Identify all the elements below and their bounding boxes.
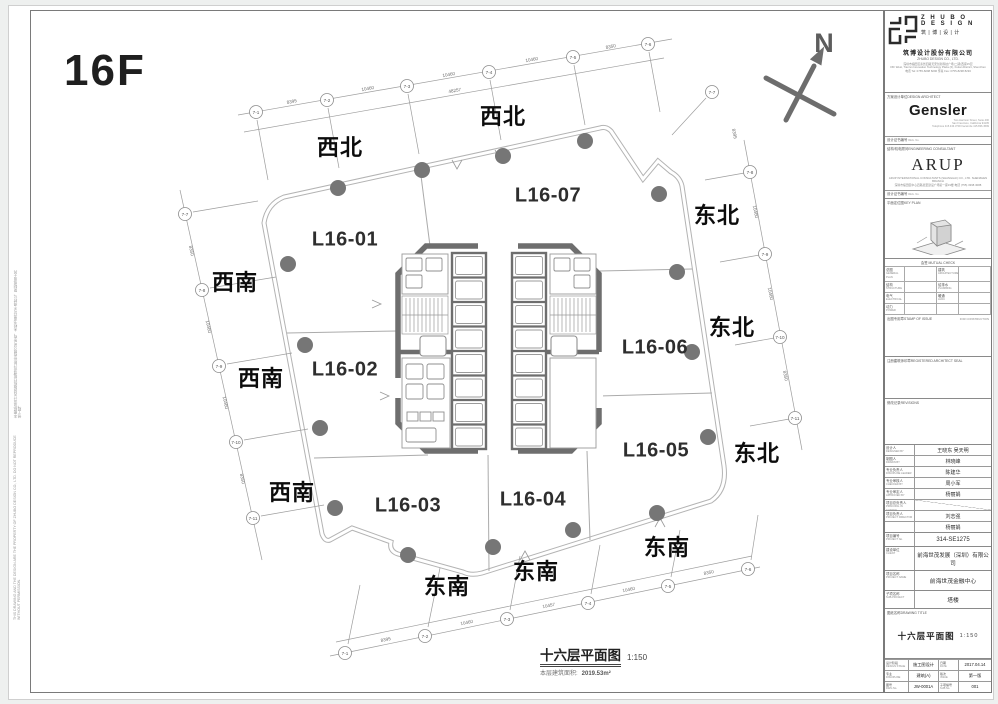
zhubo-company-cn: 筑博设计股份有限公司 [885,48,991,57]
tb-sheet-scale: 1:150 [960,633,979,639]
svg-text:10460: 10460 [752,205,759,219]
service-room-topleft [402,254,448,294]
tb-subproject: 子项名称SUB-PROJECT塔楼 [885,591,991,609]
svg-text:48257: 48257 [448,87,462,94]
caption-area-value: 2019.53m² [582,671,611,677]
svg-text:7-4: 7-4 [486,70,493,75]
direction-label-sw: 西南 [238,361,284,393]
tb-revision-box: 修改记录REVISIONS [885,399,991,445]
svg-text:10460: 10460 [460,619,474,626]
restroom-fixtures [402,358,450,448]
direction-label-se: 东南 [424,569,470,601]
core [394,241,603,455]
mech-room [550,358,596,448]
drawing-caption: 十六层平面图1:150 本层建筑面积:2019.53m² [540,644,730,677]
svg-text:10460: 10460 [525,56,539,63]
direction-label-nw: 西北 [317,130,363,162]
caption-title: 十六层平面图 [540,648,621,667]
svg-text:10460: 10460 [767,287,774,301]
unit-label: L16-03 [375,495,441,518]
arup-logo: ARUP [885,155,991,175]
svg-text:8350: 8350 [188,245,195,256]
svg-text:7-11: 7-11 [791,416,800,421]
zhubo-logo-icon [888,15,918,45]
svg-text:7-2: 7-2 [422,634,429,639]
svg-text:8350: 8350 [703,569,714,576]
svg-text:8350: 8350 [239,473,246,484]
tb-sheet-title: 图纸名称DRAWING TITLE 十六层平面图 1:150 [885,609,991,659]
unit-label: L16-04 [500,489,566,512]
svg-text:7-1: 7-1 [253,110,260,115]
svg-text:7-11: 7-11 [249,516,258,521]
direction-label-ne: 东北 [709,310,755,342]
unit-label: L16-06 [622,337,688,360]
elevator-bank-left [452,253,486,449]
margin-note-en: THIS DRAWING AND THE DESIGN ARE THE PROP… [13,430,25,620]
tb-registration-box: 注册建筑师印章REGISTERED ARCHITECT SEAL [885,357,991,399]
svg-text:7-8: 7-8 [747,170,754,175]
tb-sheet-title-value: 十六层平面图 [898,630,955,642]
svg-text:7-8: 7-8 [199,288,206,293]
floor-title: 16F [64,46,146,96]
tb-keyplan: 平面定位图KEY PLAN [885,199,991,259]
north-label: N [814,28,834,58]
svg-text:7-9: 7-9 [762,252,769,257]
svg-text:10460: 10460 [622,586,636,593]
unit-label: L16-01 [312,229,378,252]
title-block: Z H U B O D E S I G N 筑 | 博 | 设 | 计 筑博设计… [884,10,992,693]
zhubo-wordmark-cn: 筑 | 博 | 设 | 计 [921,29,988,36]
svg-text:7-5: 7-5 [570,55,577,60]
gensler-logo: Gensler [885,102,991,119]
svg-text:7-6: 7-6 [645,42,652,47]
tb-gensler: 方案设计单位DESIGN ARCHITECT Gensler Two Harri… [885,93,991,145]
svg-text:7-5: 7-5 [665,584,672,589]
tb-bottom-grid: 设计阶段DESIGN STAGE 施工图设计 日期DATE 2017.04.14… [885,659,991,692]
svg-text:7-7: 7-7 [709,90,716,95]
direction-label-sw: 西南 [269,475,315,507]
unit-label: L16-05 [623,440,689,463]
svg-text:7-2: 7-2 [324,98,331,103]
svg-text:10460: 10460 [205,320,213,334]
svg-text:8395: 8395 [380,636,391,643]
svg-text:7-10: 7-10 [231,440,241,445]
unit-label: L16-02 [312,359,378,382]
svg-text:7-3: 7-3 [404,84,411,89]
svg-text:7-3: 7-3 [504,617,511,622]
direction-label-ne: 东北 [694,198,740,230]
direction-label-ne: 东北 [734,436,780,468]
margin-note-cn: 本图纸及设计内容版权归筑博设计股份有限公司所有，未经书面许可不得转让、复制或用于… [13,268,25,418]
direction-label-se: 东南 [513,554,559,586]
svg-text:7-10: 7-10 [775,335,785,340]
north-arrow-icon: N [766,28,834,120]
svg-text:10457: 10457 [542,602,556,609]
tb-zhubo: Z H U B O D E S I G N 筑 | 博 | 设 | 计 筑博设计… [885,11,991,93]
direction-label-nw: 西北 [480,99,526,131]
tb-signoff: 会签 MUTUAL CHECK 总图GENERAL PLAN 建筑ARCHITE… [885,259,991,315]
keyplan-axon-icon [907,213,971,255]
svg-text:7-6: 7-6 [745,567,752,572]
tb-client: 建设单位CLIENT前海世茂发展（深圳）有限公司 [885,547,991,571]
svg-text:10460: 10460 [361,85,375,92]
svg-text:7-4: 7-4 [585,601,592,606]
svg-text:7-9: 7-9 [216,364,223,369]
stair-right [550,296,596,334]
caption-area-label: 本层建筑面积: [540,671,578,677]
tb-signatures: 设计人DESIGNED BY王晓东 吴天明 制图人DRAWN BY林晓峰 专业负… [885,445,991,533]
svg-text:8395: 8395 [731,128,738,139]
direction-label-se: 东南 [644,530,690,562]
zhubo-company-en: ZHUBO DESIGN CO., LTD. [885,57,991,61]
svg-text:8350: 8350 [782,370,789,381]
direction-label-sw: 西南 [212,265,258,297]
tb-stamp-box: 出图专用章STAMP OF ISSUE FOR CONSTRUCTION [885,315,991,357]
tb-arup: 结构/机电顾问ENGINEERING CONSULTANT ARUP ARUP … [885,145,991,199]
service-room-topright [550,254,596,294]
tb-project-name: 项目名称PROJECT NAME前海世茂金融中心 [885,571,991,591]
svg-text:10460: 10460 [222,396,230,410]
caption-scale: 1:150 [627,653,647,662]
drawing-sheet: 7-1 7-2 7-3 7-4 7-5 7-6 7-7 7-8 7-9 7-10… [0,0,998,704]
unit-label: L16-07 [515,185,581,208]
svg-text:7-1: 7-1 [342,651,349,656]
svg-text:7-7: 7-7 [182,212,189,217]
elevator-bank-right [512,253,546,449]
svg-text:8395: 8395 [286,98,297,105]
stair-left [402,296,448,334]
tb-project-no: 项目编号PROJECT No.314-SE1275 [885,533,991,547]
